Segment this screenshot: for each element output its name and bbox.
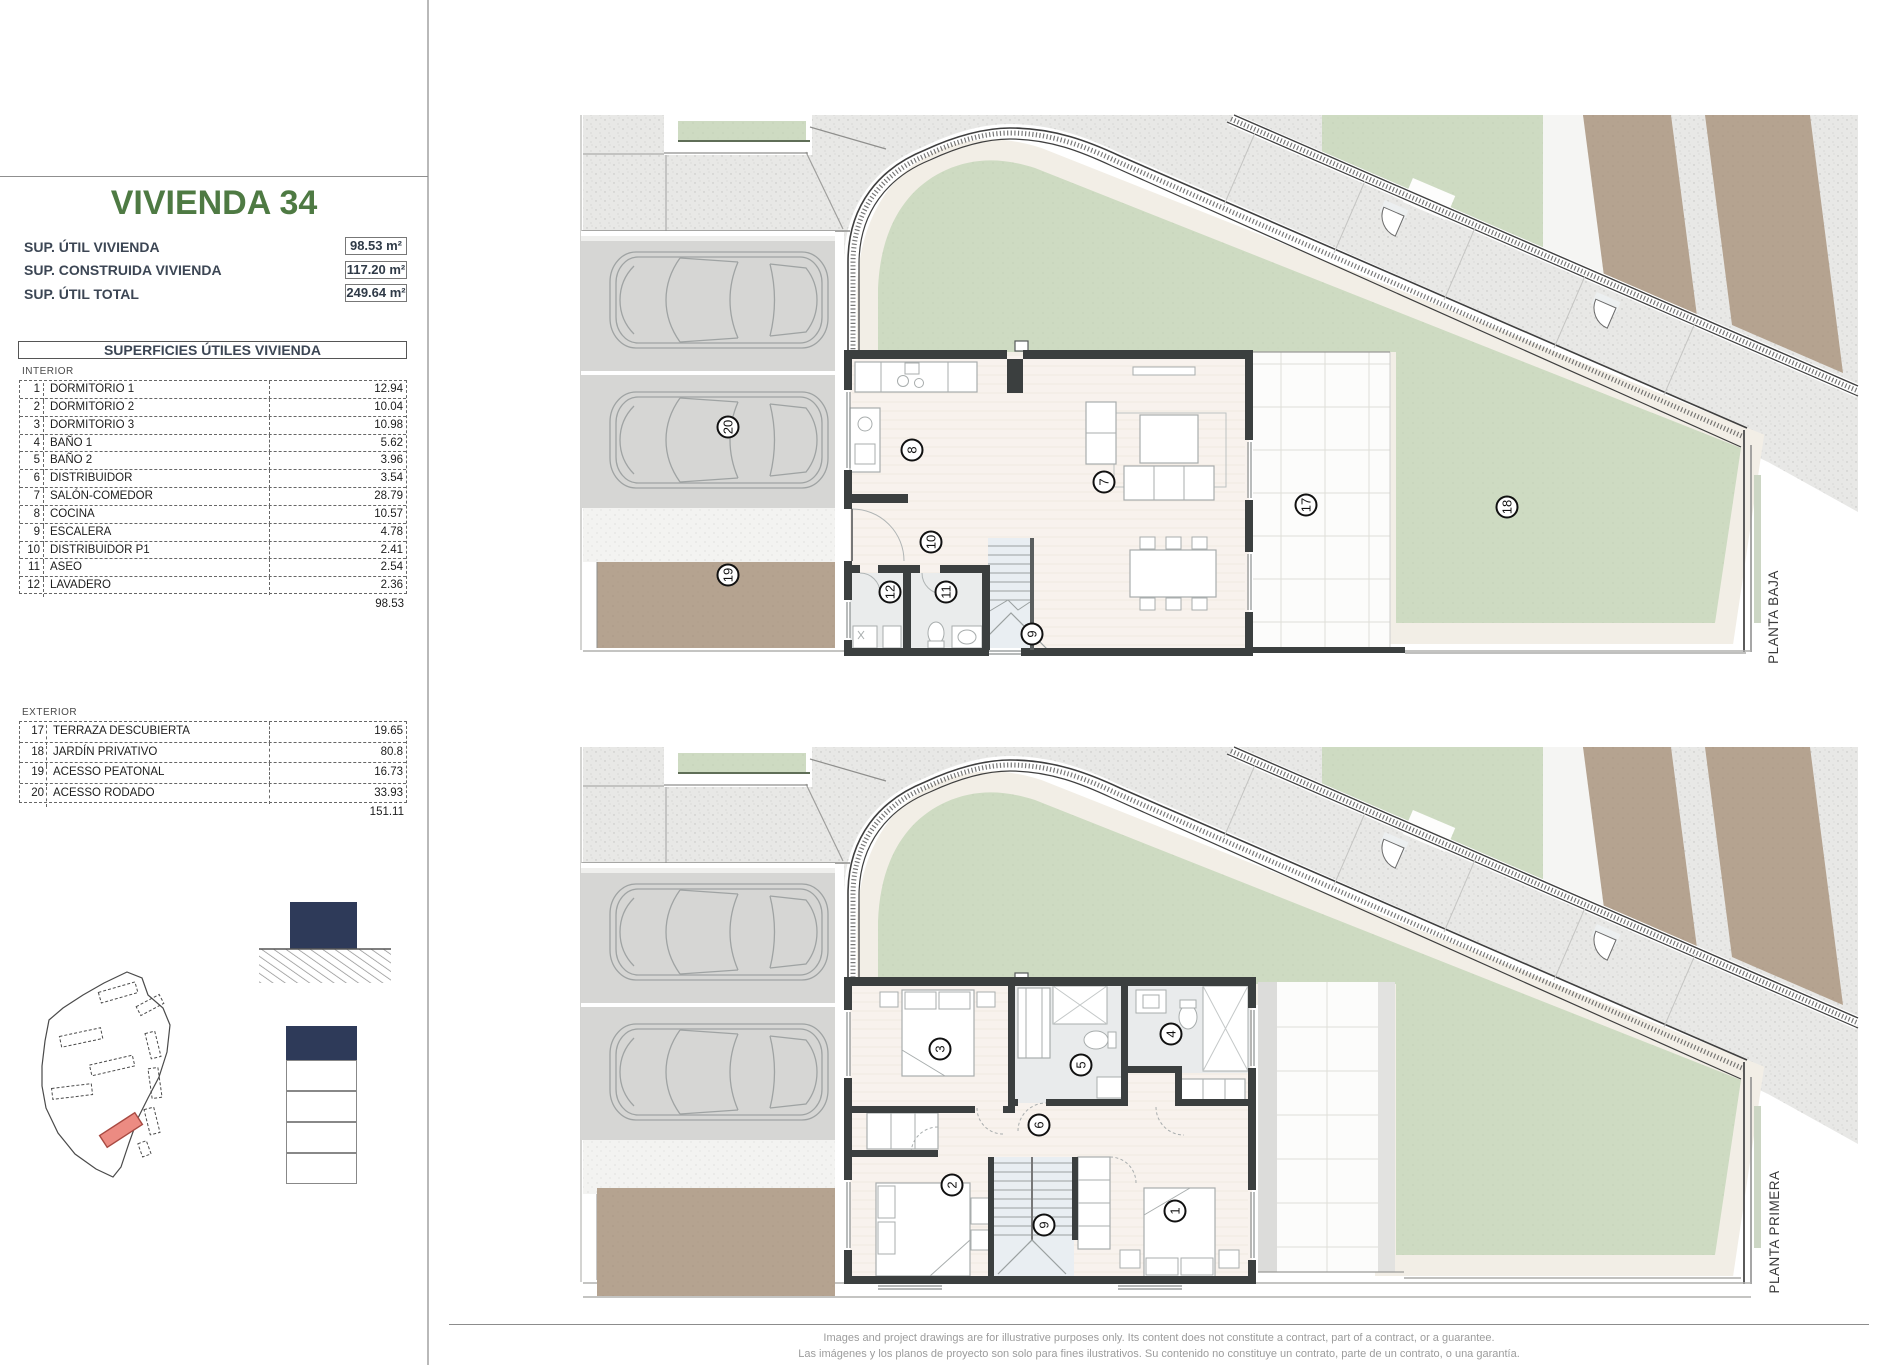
svg-text:20: 20 xyxy=(721,420,736,434)
svg-text:6: 6 xyxy=(1032,1121,1047,1128)
svg-text:12: 12 xyxy=(883,585,898,599)
svg-text:5: 5 xyxy=(1074,1061,1089,1068)
svg-text:1: 1 xyxy=(1168,1207,1183,1214)
svg-text:PLANTA BAJA: PLANTA BAJA xyxy=(1766,570,1781,664)
svg-text:19: 19 xyxy=(721,568,736,582)
svg-text:9: 9 xyxy=(1025,630,1040,637)
svg-text:17: 17 xyxy=(1299,498,1314,512)
svg-text:11: 11 xyxy=(939,585,954,599)
svg-text:3: 3 xyxy=(933,1045,948,1052)
svg-text:2: 2 xyxy=(945,1181,960,1188)
svg-text:18: 18 xyxy=(1500,500,1515,514)
svg-text:PLANTA PRIMERA: PLANTA PRIMERA xyxy=(1767,1170,1782,1293)
svg-text:7: 7 xyxy=(1097,478,1112,485)
svg-text:4: 4 xyxy=(1164,1030,1179,1037)
svg-text:8: 8 xyxy=(905,446,920,453)
svg-text:9: 9 xyxy=(1037,1221,1052,1228)
svg-text:10: 10 xyxy=(924,535,939,549)
